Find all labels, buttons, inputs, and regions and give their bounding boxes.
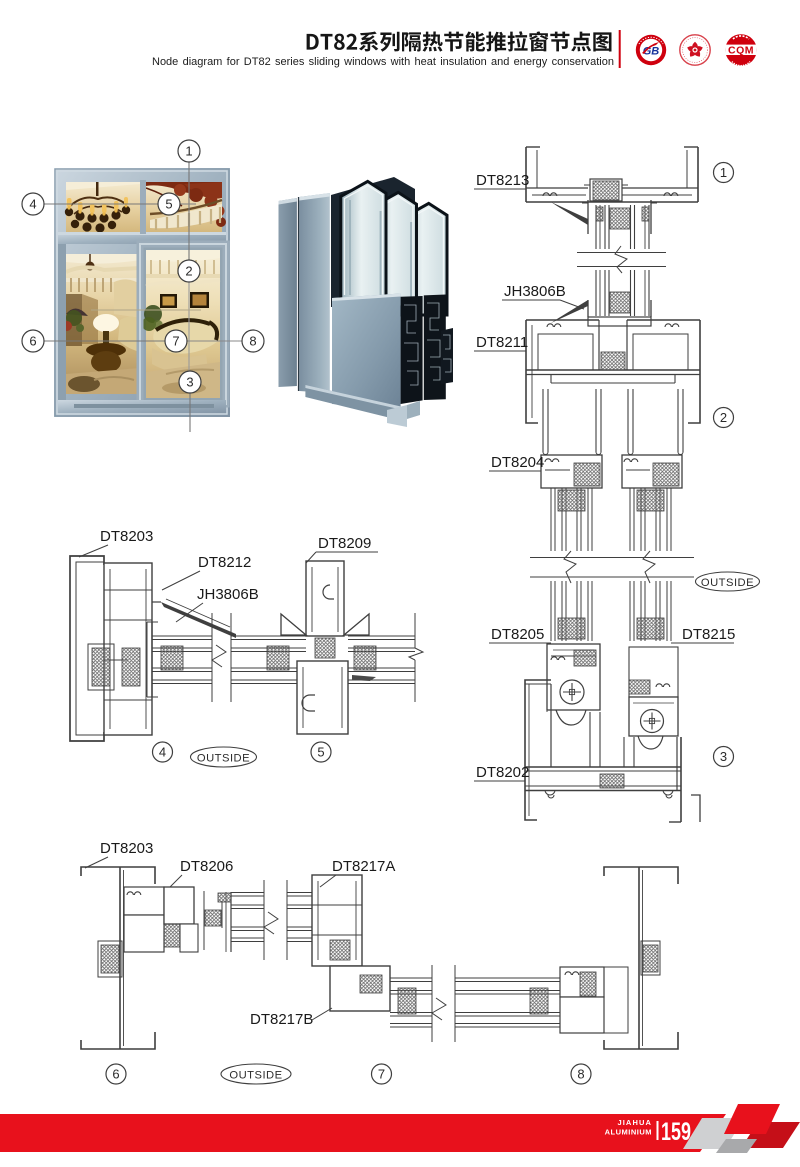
- svg-text:OUTSIDE: OUTSIDE: [229, 1069, 282, 1081]
- svg-text:OUTSIDE: OUTSIDE: [701, 577, 754, 589]
- svg-text:DT8205: DT8205: [491, 626, 544, 643]
- svg-text:6: 6: [29, 334, 36, 349]
- svg-text:6: 6: [112, 1067, 119, 1082]
- svg-text:DT8204: DT8204: [491, 454, 544, 471]
- svg-text:159: 159: [661, 1118, 691, 1146]
- svg-text:4: 4: [29, 197, 36, 212]
- svg-text:3: 3: [720, 749, 727, 764]
- svg-text:DT8209: DT8209: [318, 535, 371, 552]
- svg-text:OUTSIDE: OUTSIDE: [197, 752, 250, 764]
- svg-text:2: 2: [720, 410, 727, 425]
- svg-text:3: 3: [186, 375, 193, 390]
- svg-text:ALUMINIUM: ALUMINIUM: [605, 1128, 652, 1137]
- svg-text:DT8202: DT8202: [476, 764, 529, 781]
- svg-text:7: 7: [172, 334, 179, 349]
- svg-text:DT8215: DT8215: [682, 626, 735, 643]
- svg-text:DT8213: DT8213: [476, 172, 529, 189]
- svg-text:DT8212: DT8212: [198, 554, 251, 571]
- svg-text:1: 1: [720, 165, 727, 180]
- svg-text:8: 8: [249, 334, 256, 349]
- svg-text:DT8203: DT8203: [100, 528, 153, 545]
- svg-text:DT8203: DT8203: [100, 840, 153, 857]
- svg-text:DT8206: DT8206: [180, 858, 233, 875]
- svg-text:JH3806B: JH3806B: [197, 586, 259, 603]
- svg-text:DT8217B: DT8217B: [250, 1011, 313, 1028]
- svg-text:5: 5: [317, 745, 324, 760]
- svg-text:2: 2: [185, 264, 192, 279]
- svg-text:8: 8: [577, 1067, 584, 1082]
- svg-text:5: 5: [165, 197, 172, 212]
- svg-text:DT8211: DT8211: [476, 334, 528, 351]
- svg-text:DT8217A: DT8217A: [332, 858, 395, 875]
- svg-text:1: 1: [185, 144, 192, 159]
- svg-text:7: 7: [378, 1067, 385, 1082]
- svg-text:JH3806B: JH3806B: [504, 283, 566, 300]
- svg-text:4: 4: [159, 745, 166, 760]
- svg-text:JIAHUA: JIAHUA: [617, 1118, 652, 1127]
